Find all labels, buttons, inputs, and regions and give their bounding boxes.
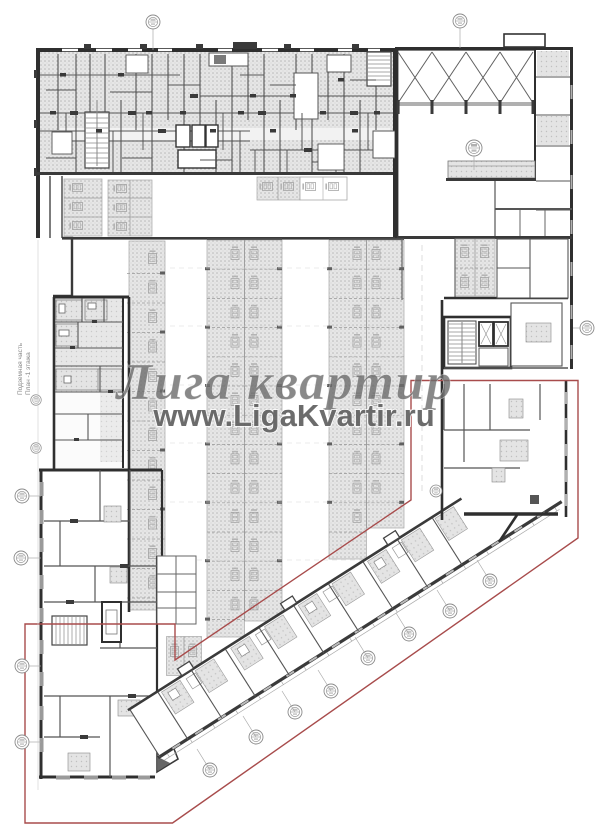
svg-text:План -1 этажа: План -1 этажа <box>25 352 32 395</box>
svg-text:Подземная часть: Подземная часть <box>17 342 24 395</box>
svg-text:www.LigaKvartir.ru: www.LigaKvartir.ru <box>152 398 434 433</box>
